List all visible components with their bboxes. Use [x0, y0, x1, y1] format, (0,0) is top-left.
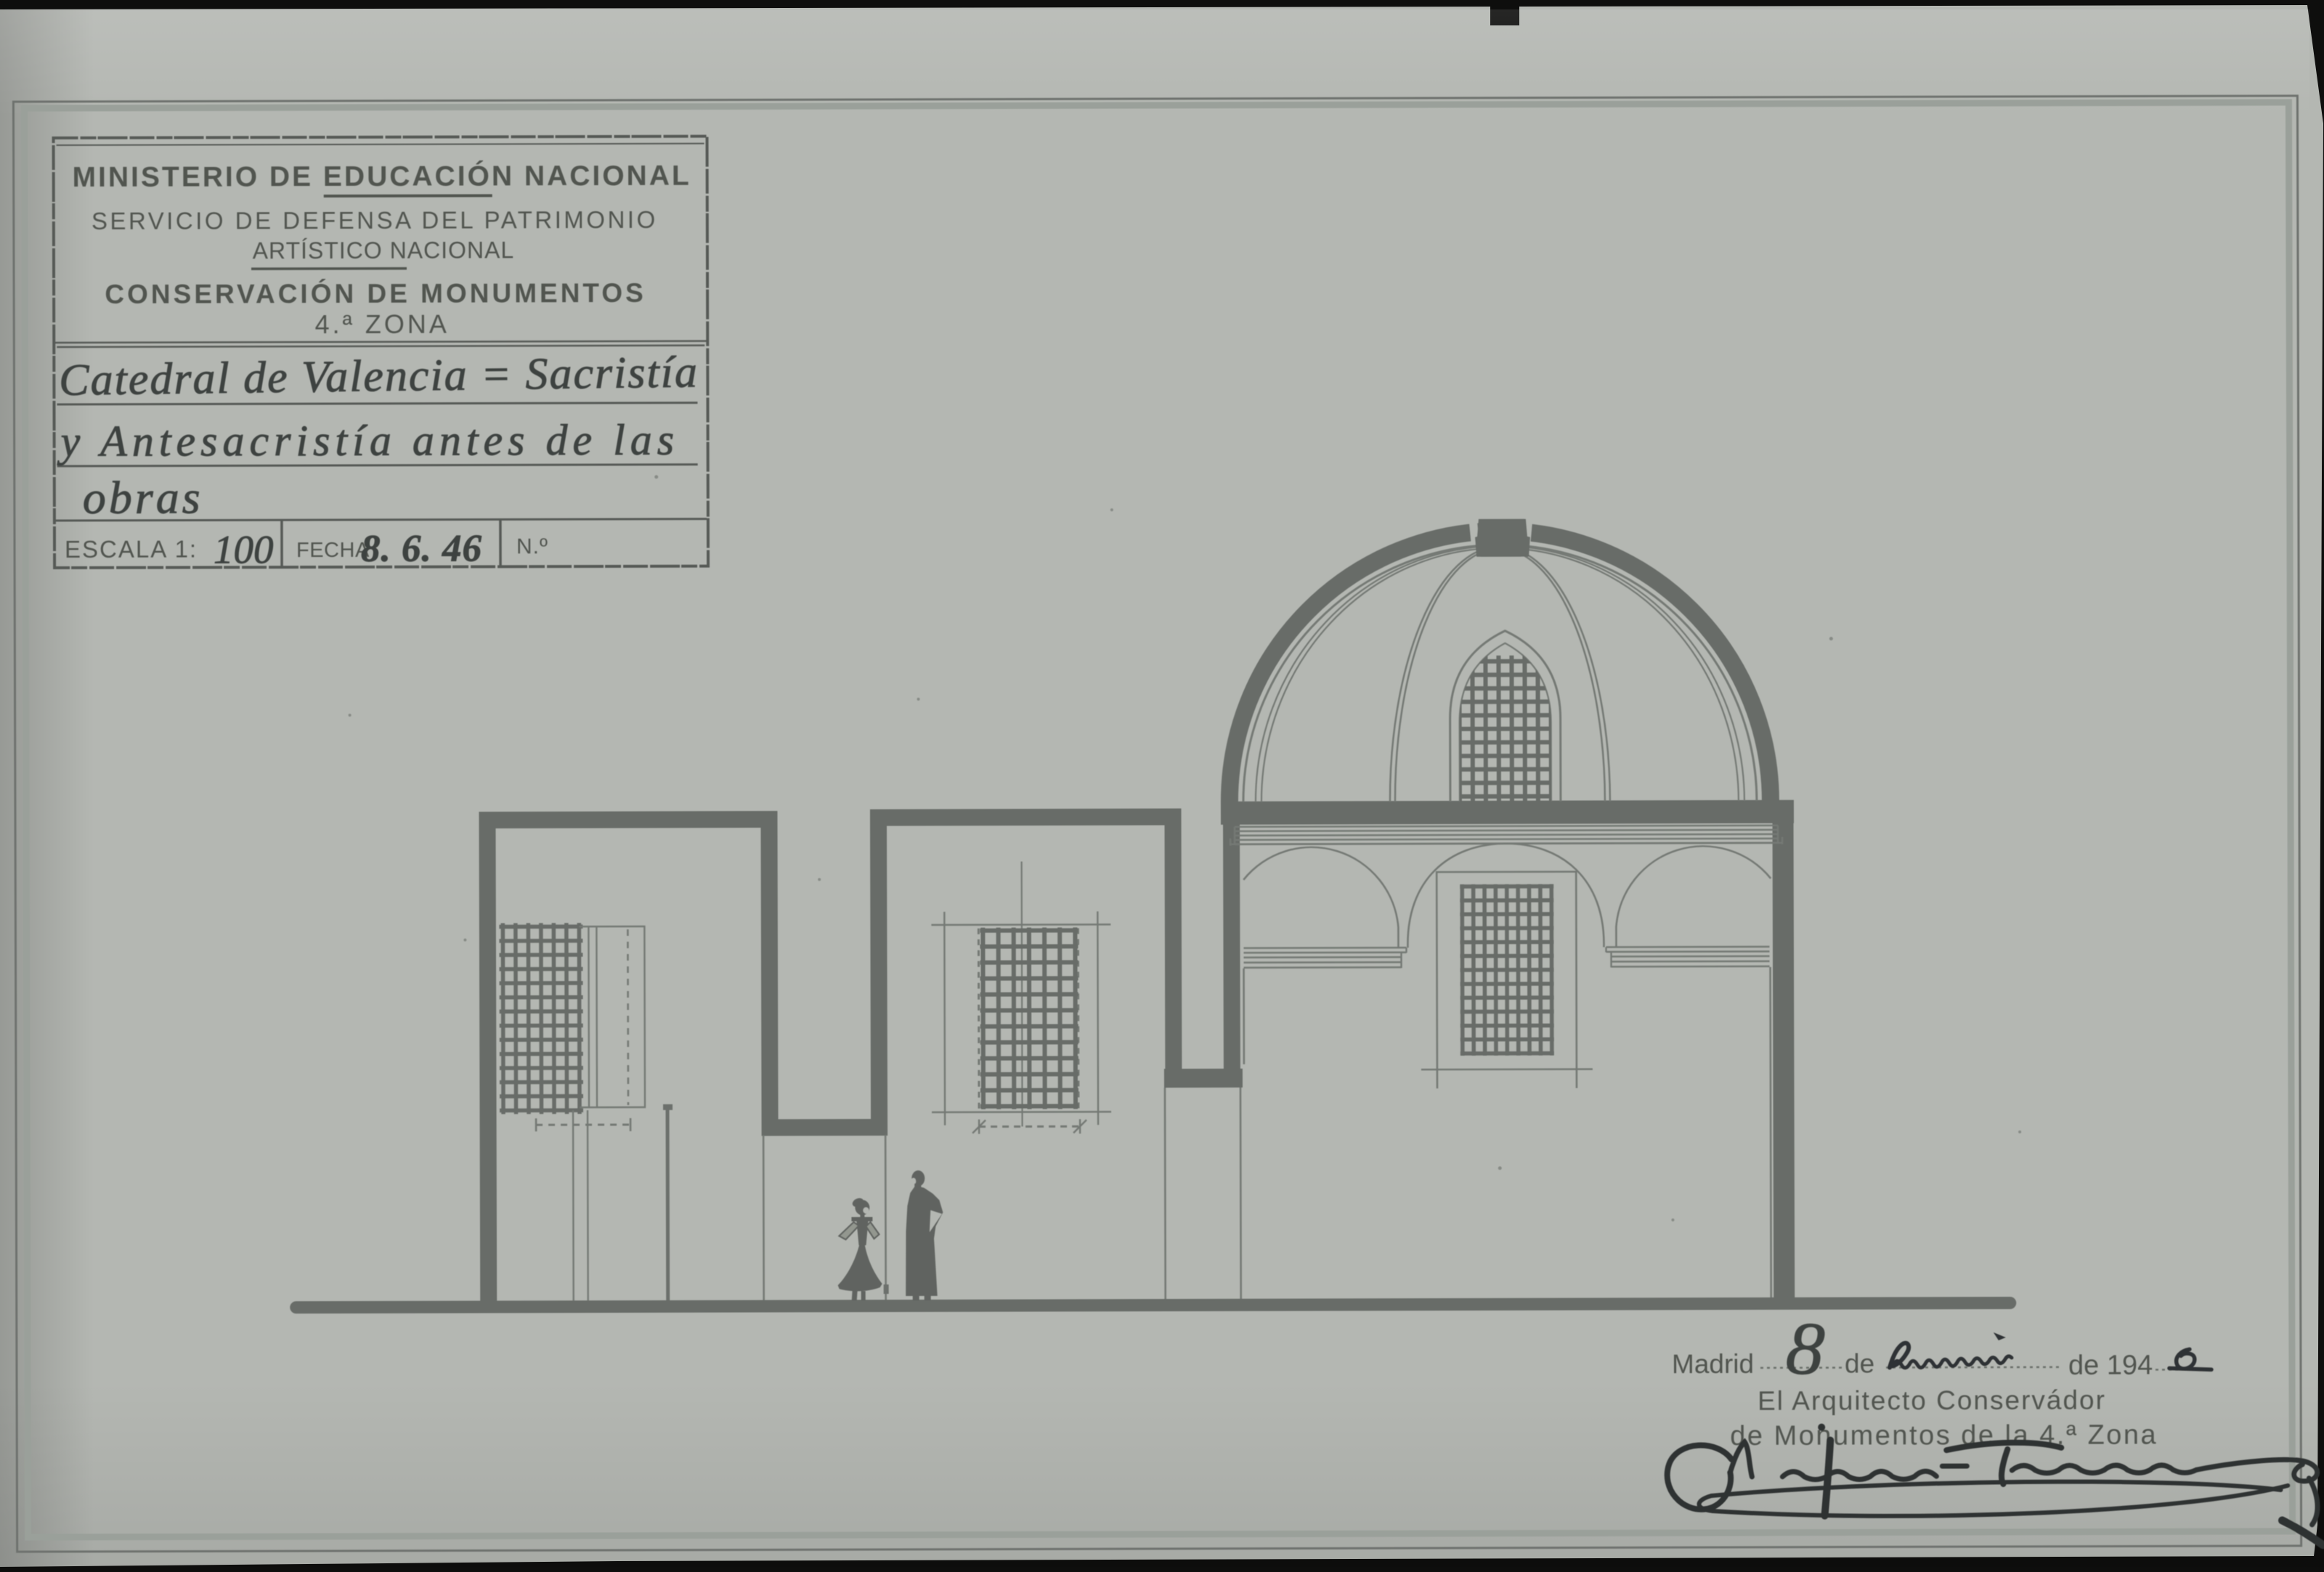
svg-text:de Monumentos de la 4.ª Zona: de Monumentos de la 4.ª Zona [1730, 1420, 2158, 1451]
svg-text:de 194: de 194 [2068, 1350, 2153, 1380]
svg-text:El Arquitecto Conservádor: El Arquitecto Conservádor [1758, 1385, 2106, 1416]
svg-text:obras: obras [83, 471, 203, 523]
svg-text:ESCALA 1:: ESCALA 1: [65, 535, 198, 562]
svg-text:N.º: N.º [516, 534, 548, 558]
svg-text:SERVICIO DE DEFENSA DEL PATRIM: SERVICIO DE DEFENSA DEL PATRIMONIO [92, 206, 658, 235]
svg-text:8: 8 [1784, 1306, 1827, 1391]
svg-text:MINISTERIO DE EDUCACIÓN NACION: MINISTERIO DE EDUCACIÓN NACIONAL [73, 160, 691, 193]
svg-text:100: 100 [214, 527, 274, 571]
svg-text:8. 6. 46: 8. 6. 46 [361, 527, 482, 569]
svg-text:FECHA: FECHA [296, 539, 370, 562]
svg-text:Madrid: Madrid [1672, 1349, 1754, 1379]
svg-text:ARTÍSTICO NACIONAL: ARTÍSTICO NACIONAL [253, 237, 515, 264]
svg-text:CONSERVACIÓN DE MONUMENTOS: CONSERVACIÓN DE MONUMENTOS [105, 277, 646, 309]
svg-text:de: de [1845, 1348, 1874, 1378]
svg-text:Catedral de Valencia = Sacrist: Catedral de Valencia = Sacristía [59, 347, 699, 405]
svg-text:4.ª ZONA: 4.ª ZONA [314, 309, 449, 339]
svg-text:y Antesacristía antes de las: y Antesacristía antes de las [57, 416, 680, 465]
